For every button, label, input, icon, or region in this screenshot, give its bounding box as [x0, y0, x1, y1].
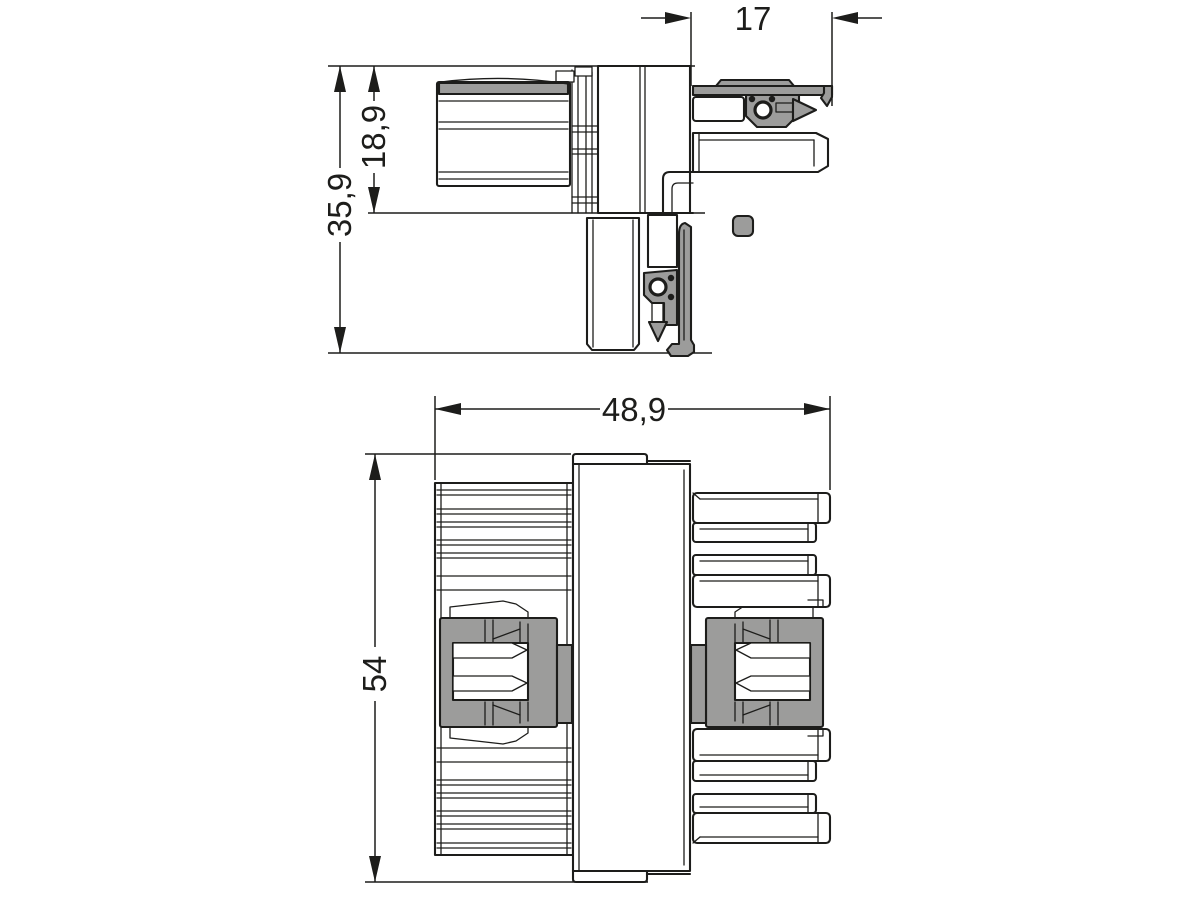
side-view-down-leg — [587, 218, 639, 350]
latch-pivot-hole — [755, 102, 771, 118]
latch-lever-bar — [693, 86, 832, 95]
dimension-label-total-width: 48,9 — [602, 391, 666, 428]
side-view-right-arm — [693, 80, 832, 172]
arrowhead-right-icon — [665, 12, 691, 24]
dimension-35-9: 35,9 — [321, 66, 358, 353]
side-view-extension-lines — [328, 12, 832, 353]
arrowhead-right-icon — [804, 403, 830, 415]
front-view-left-latch — [440, 601, 572, 744]
latch-pivot-hole — [650, 279, 666, 295]
dimension-17: 17 — [641, 0, 882, 37]
arrowhead-left-icon — [435, 403, 461, 415]
arrowhead-up-icon — [334, 66, 346, 92]
dimension-label-upper-height: 18,9 — [355, 105, 392, 169]
latch-side-bar — [557, 645, 572, 723]
arrowhead-down-icon — [369, 856, 381, 882]
latch-arrow — [649, 322, 667, 341]
contact-finger — [736, 676, 810, 691]
arrowhead-up-icon — [368, 66, 380, 92]
tower-bottom-tab — [573, 871, 647, 882]
tower-top-tab — [573, 454, 647, 464]
dimension-label-total-height: 35,9 — [321, 173, 358, 237]
arrowhead-down-icon — [368, 187, 380, 213]
arrowhead-left-icon — [832, 12, 858, 24]
front-view-right-latch — [691, 601, 823, 744]
clip-tab — [733, 216, 753, 236]
arrowhead-up-icon — [369, 454, 381, 480]
right-prong — [693, 133, 828, 172]
technical-drawing-page: 17 35,9 18,9 — [0, 0, 1200, 900]
contact-finger — [736, 643, 810, 658]
dimension-54: 54 — [356, 454, 393, 882]
socket-gray-cap — [439, 83, 568, 94]
side-view-lower-latch — [644, 215, 694, 356]
arrowhead-down-icon — [334, 327, 346, 353]
dimension-18-9: 18,9 — [355, 66, 392, 213]
latch-side-bar — [691, 645, 706, 723]
front-view: 48,9 54 — [356, 391, 830, 882]
side-view-socket-block — [437, 78, 570, 186]
contact-finger — [453, 676, 527, 691]
side-view-housing — [598, 66, 690, 213]
technical-drawing: 17 35,9 18,9 — [0, 0, 1200, 900]
front-view-center-tower — [573, 454, 690, 882]
dimension-48-9: 48,9 — [435, 391, 830, 428]
dimension-label-front-height: 54 — [356, 656, 393, 693]
contact-finger — [453, 643, 527, 658]
dimension-label-arm-length: 17 — [735, 0, 772, 37]
latch-arrow — [793, 99, 816, 121]
side-view: 17 35,9 18,9 — [321, 0, 882, 356]
